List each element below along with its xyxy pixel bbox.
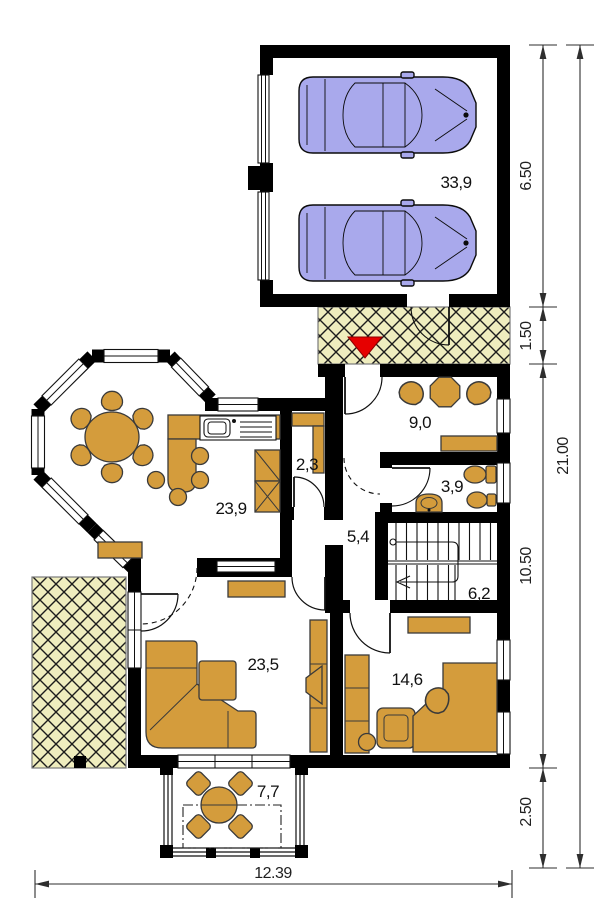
chair: [463, 378, 494, 408]
serving-hatch-window: [217, 561, 275, 572]
living-sideboard: [228, 581, 285, 597]
kitchen-sink: [200, 416, 276, 440]
room-label-vestibule: 9,0: [409, 413, 431, 432]
chair: [396, 378, 427, 408]
dining-chair: [102, 464, 123, 483]
coffee-table: [199, 661, 236, 700]
bedroom-door: [350, 613, 390, 653]
dining-table: [85, 412, 139, 462]
vestibule-window: [497, 399, 510, 433]
octagon-table: [430, 377, 460, 407]
dim-total-width: 12.39: [254, 865, 292, 882]
kitchen-tall-units: [255, 450, 280, 512]
bidet: [467, 492, 496, 508]
garage-door-lower: [258, 192, 269, 280]
car-1: [299, 72, 476, 158]
shelf: [408, 617, 470, 633]
dim-entry-strip: 1.50: [518, 321, 535, 351]
car-2: [299, 200, 476, 286]
tv: [306, 666, 322, 704]
dimension-right-total: 21.00: [555, 45, 594, 868]
room-label-pantry: 2,3: [296, 455, 318, 474]
bay-window-sw: [42, 478, 88, 524]
vestibule-hall-arch: [344, 458, 380, 494]
bedroom-window-1: [497, 640, 510, 680]
terrace-side-door: [141, 594, 178, 631]
entry-paving-hatch: [318, 307, 510, 364]
room-label-hall: 5,4: [347, 527, 369, 546]
toilet: [464, 466, 496, 483]
vestibule-sideboard: [441, 436, 497, 451]
dim-total-depth: 21.00: [555, 437, 572, 475]
dining-chair: [102, 391, 123, 410]
garage-door-upper: [258, 75, 269, 163]
bay-window-nw: [42, 359, 88, 405]
washbasin: [416, 494, 442, 512]
living-left-window-door: [128, 592, 141, 668]
dimension-right-inner: 6.50 1.50 10.50 2.50: [518, 45, 557, 868]
living-room-furniture: [146, 581, 327, 752]
dining-living-opening: [141, 568, 197, 624]
floor-plan-drawing: 33,9 9,0 2,3 3,9 23,9 5,4 6,2 23,5 14,6 …: [0, 0, 610, 900]
front-door: [345, 377, 382, 414]
bar-stool: [192, 448, 209, 465]
bar-stool: [148, 472, 165, 489]
room-label-bathroom: 3,9: [441, 477, 463, 496]
room-label-kitchen-dining: 23,9: [215, 499, 246, 518]
corner-desk: [413, 663, 497, 752]
room-label-terrace: 7,7: [257, 782, 279, 801]
dimension-bottom: 12.39: [35, 865, 512, 898]
dining-sideboard: [98, 542, 142, 558]
living-room-door: [292, 577, 325, 610]
room-label-garage: 33,9: [440, 173, 471, 192]
pantry-door: [294, 477, 324, 507]
bar-stool: [192, 472, 209, 489]
dim-garage-depth: 6.50: [518, 161, 535, 191]
kitchen-window: [218, 398, 258, 411]
dim-terrace-depth: 2.50: [518, 797, 535, 827]
room-label-staircase: 6,2: [468, 584, 490, 603]
bathroom-window: [497, 463, 510, 503]
side-table: [359, 734, 376, 751]
bedroom-window-2: [497, 712, 510, 754]
dim-house-depth: 10.50: [518, 547, 535, 585]
side-terrace-hatch: [32, 577, 126, 768]
room-label-living: 23,5: [247, 655, 278, 674]
room-label-bedroom: 14,6: [391, 670, 422, 689]
bay-window-top: [104, 350, 158, 363]
armchair: [377, 708, 415, 748]
terrace-french-window: [178, 755, 290, 768]
bay-window-west: [32, 416, 45, 468]
bar-stool: [170, 489, 187, 506]
bay-window-ne: [171, 358, 208, 396]
terrace: [160, 762, 308, 858]
floor-plan-page: 33,9 9,0 2,3 3,9 23,9 5,4 6,2 23,5 14,6 …: [0, 0, 610, 900]
